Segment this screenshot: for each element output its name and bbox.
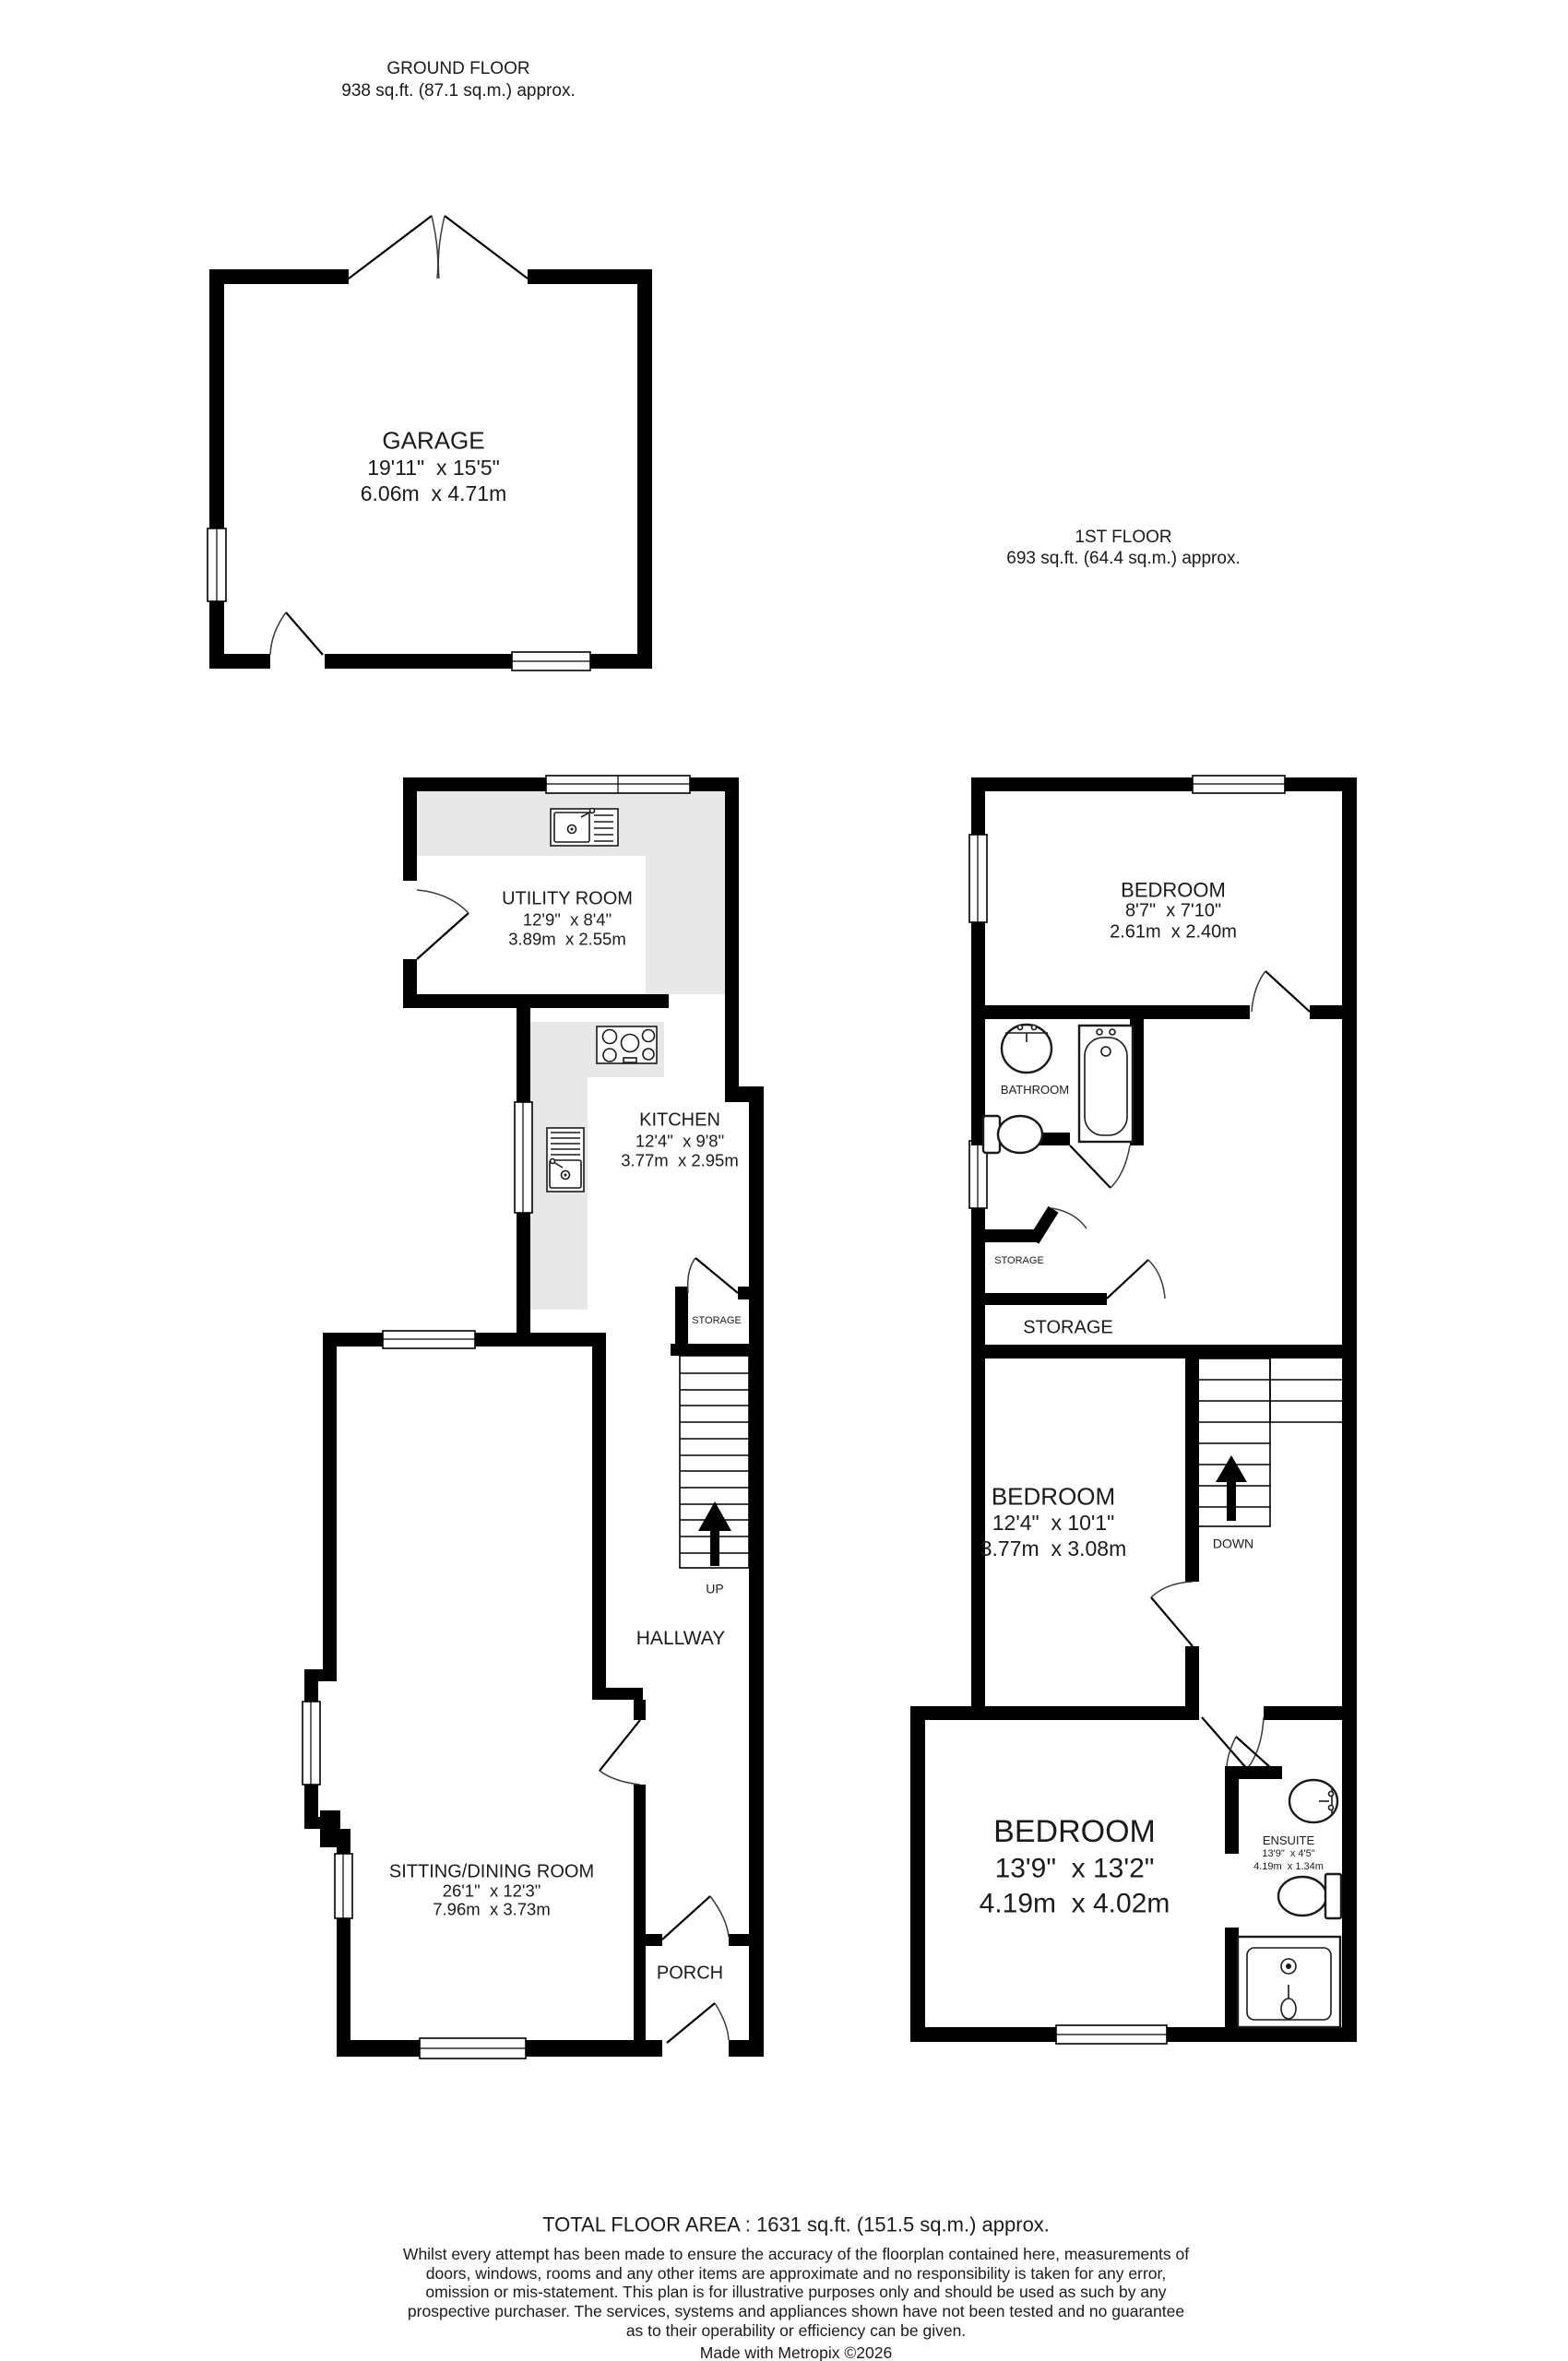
bedroom-mid-door-icon xyxy=(1151,1582,1193,1646)
bedroom-top-window xyxy=(1193,776,1285,793)
ensuite-dims-imperial: 13'9" x 4'5" xyxy=(1262,1849,1314,1860)
utility-dims-imperial: 12'9" x 8'4" xyxy=(523,910,612,928)
total-floor-area: TOTAL FLOOR AREA : 1631 sq.ft. (151.5 sq… xyxy=(542,2213,1050,2235)
staircase-up xyxy=(680,1356,749,1568)
sitting-label: SITTING/DINING ROOM xyxy=(389,1863,594,1882)
bedroom-top-label: BEDROOM xyxy=(1121,879,1226,900)
porch-inner-door-icon xyxy=(662,1896,729,1940)
hallway-label: HALLWAY xyxy=(636,1629,725,1649)
bedroom-big-label: BEDROOM xyxy=(993,1816,1156,1849)
porch-entrance-door-icon xyxy=(667,2003,729,2043)
stairs-up-label: UP xyxy=(706,1583,723,1596)
bedroom-mid-dims-imperial: 12'4" x 10'1" xyxy=(992,1512,1115,1534)
ensuite-label: ENSUITE xyxy=(1263,1834,1314,1847)
sitting-window-bottom xyxy=(420,2038,526,2058)
landing-door-icon xyxy=(1107,1260,1165,1299)
bathroom-basin-icon xyxy=(1002,1025,1051,1073)
kitchen-dims-imperial: 12'4" x 9'8" xyxy=(636,1132,724,1149)
sitting-dims-metric: 7.96m x 3.73m xyxy=(433,1900,551,1917)
kitchen-dims-metric: 3.77m x 2.95m xyxy=(621,1151,739,1169)
ground-floor-area: 938 sq.ft. (87.1 sq.m.) approx. xyxy=(341,82,575,101)
stairs-up-arrow-icon xyxy=(698,1501,731,1566)
kitchen-hob-icon xyxy=(597,1026,657,1063)
garage-window-bottom xyxy=(512,652,590,670)
stairs-down-label: DOWN xyxy=(1213,1537,1253,1551)
bathtub-icon xyxy=(1079,1026,1133,1142)
garage-window-left xyxy=(208,528,226,601)
ensuite-dims-metric: 4.19m x 1.34m xyxy=(1253,1862,1324,1873)
bedroom-top-dims-imperial: 8'7" x 7'10" xyxy=(1125,902,1221,921)
storage-gf-label: STORAGE xyxy=(692,1316,742,1327)
storage-closet-door-leaf xyxy=(1028,1206,1058,1244)
sitting-window-left xyxy=(335,1854,352,1918)
utility-window xyxy=(546,776,690,793)
garage-label: GARAGE xyxy=(382,428,484,453)
garage-side-door-icon xyxy=(270,612,323,655)
first-floor-title: 1ST FLOOR xyxy=(1075,528,1171,547)
sitting-window-top xyxy=(383,1331,475,1348)
bathroom-toilet-icon xyxy=(983,1116,1042,1153)
ensuite-basin-icon xyxy=(1289,1780,1337,1822)
storage-closet-door-arc xyxy=(1051,1208,1087,1228)
bedroom-top-window-left xyxy=(969,835,987,922)
storage-ff-label: STORAGE xyxy=(1023,1319,1112,1338)
floorplan-page: GROUND FLOOR 938 sq.ft. (87.1 sq.m.) app… xyxy=(0,0,1568,2361)
bedroom-mid-dims-metric: 3.77m x 3.08m xyxy=(980,1537,1127,1560)
garage-door-icon xyxy=(349,216,528,279)
sitting-window-bay xyxy=(303,1702,320,1785)
storage-ff-closet-label: STORAGE xyxy=(994,1256,1044,1267)
ensuite-toilet-icon xyxy=(1278,1874,1341,1918)
bathroom-label: BATHROOM xyxy=(1001,1084,1069,1097)
utility-counter-right xyxy=(646,791,725,994)
utility-label: UTILITY ROOM xyxy=(502,890,633,909)
storage-door-icon xyxy=(688,1258,738,1293)
shower-icon xyxy=(1238,1937,1340,2027)
metropix-credit: Made with Metropix ©2026 xyxy=(700,2344,892,2361)
bedroom-mid-label: BEDROOM xyxy=(992,1484,1115,1509)
utility-door-icon xyxy=(417,890,469,959)
bedroom-top-dims-metric: 2.61m x 2.40m xyxy=(1110,923,1237,943)
kitchen-label: KITCHEN xyxy=(639,1111,720,1131)
kitchen-window xyxy=(515,1102,532,1213)
sitting-dims-imperial: 26'1" x 12'3" xyxy=(443,1881,541,1899)
bathroom-door-icon xyxy=(1070,1145,1130,1188)
floorplan-drawing xyxy=(0,0,1568,2361)
ground-floor-title: GROUND FLOOR xyxy=(386,60,529,78)
staircase-down xyxy=(1193,1358,1342,1526)
porch-label: PORCH xyxy=(657,1964,723,1984)
bedroom-big-dims-metric: 4.19m x 4.02m xyxy=(980,1889,1170,1918)
bedroom-top-door-icon xyxy=(1252,971,1310,1012)
bedroom-big-window xyxy=(1056,2025,1167,2044)
garage-dims-metric: 6.06m x 4.71m xyxy=(361,482,507,504)
garage-dims-imperial: 19'11" x 15'5" xyxy=(367,457,500,479)
utility-sink-icon xyxy=(551,809,618,847)
first-floor-area: 693 sq.ft. (64.4 sq.m.) approx. xyxy=(1006,550,1240,568)
disclaimer-text: Whilst every attempt has been made to en… xyxy=(399,2245,1193,2340)
kitchen-sink-icon xyxy=(547,1128,584,1192)
utility-dims-metric: 3.89m x 2.55m xyxy=(508,930,626,947)
sitting-room-door-icon xyxy=(600,1720,640,1785)
bedroom-big-dims-imperial: 13'9" x 13'2" xyxy=(995,1854,1155,1883)
